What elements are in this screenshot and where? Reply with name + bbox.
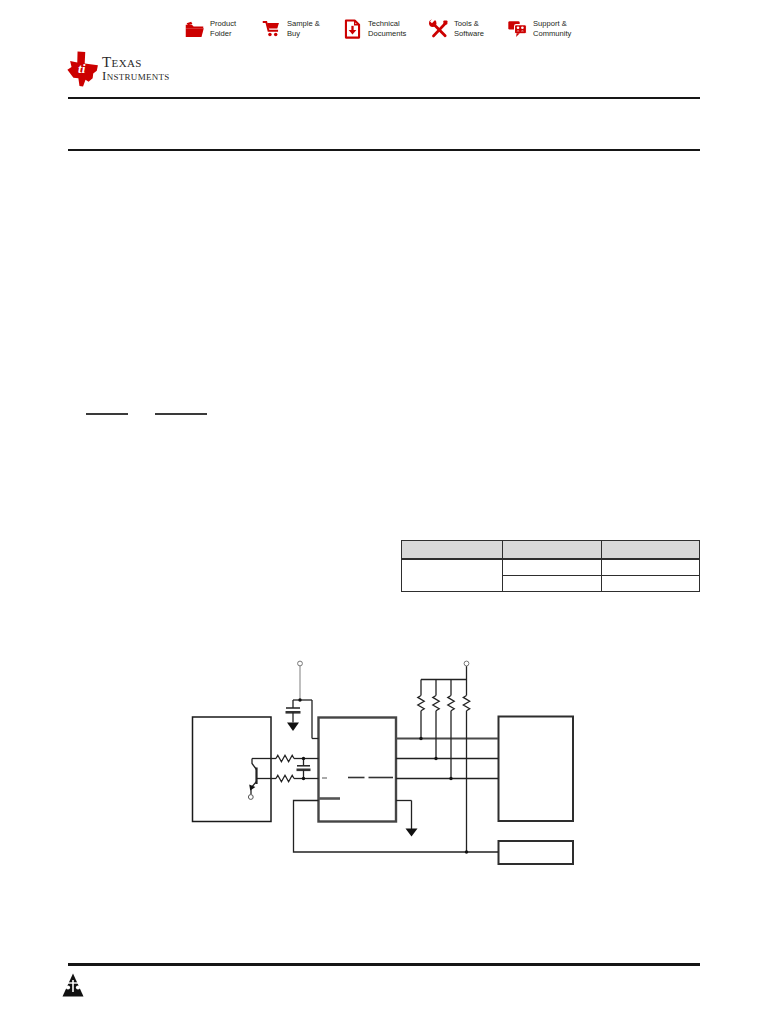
host-block xyxy=(499,717,574,822)
emitter-terminal xyxy=(248,795,253,800)
source-block xyxy=(193,717,272,822)
aux-block xyxy=(499,841,574,864)
ground-symbol-left xyxy=(287,723,299,732)
warning-triangle-icon xyxy=(62,972,84,999)
series-resistor-bottom xyxy=(276,775,294,781)
datasheet-page: { "toolbar": { "actions": [ {"label": "P… xyxy=(0,0,768,1024)
pullup-resistor xyxy=(448,696,454,711)
pullup-resistor xyxy=(433,696,439,711)
pullup-resistor xyxy=(418,696,424,711)
series-resistor-top xyxy=(276,755,294,761)
supply-terminal-left xyxy=(298,661,303,666)
pullup-resistor xyxy=(463,696,469,711)
supply-terminal-right xyxy=(464,661,469,666)
application-schematic xyxy=(0,0,768,1024)
ground-symbol-right xyxy=(406,829,418,837)
controller-block xyxy=(319,718,397,822)
